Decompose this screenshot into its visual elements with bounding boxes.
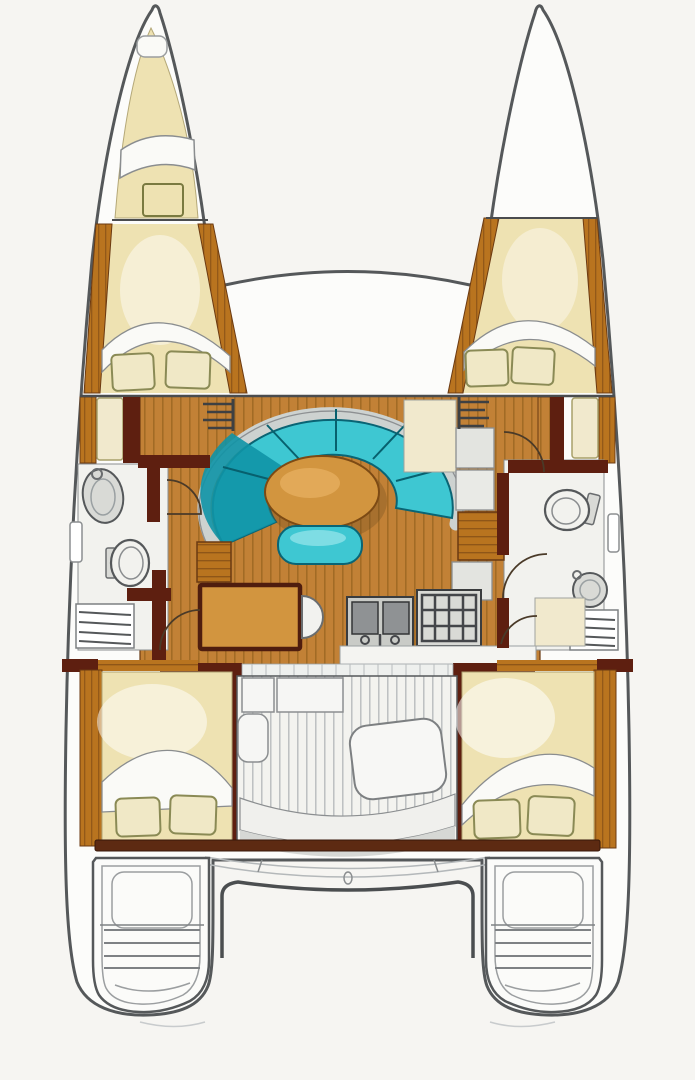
cabinet [456, 428, 494, 468]
bow-hatch-cushion [143, 184, 183, 216]
port-side-shelf [97, 398, 123, 460]
stove [417, 590, 481, 646]
wall [497, 473, 509, 555]
pillow [165, 351, 210, 389]
davit-fitting [344, 872, 352, 884]
cockpit-table [348, 717, 448, 802]
aft-beam [95, 840, 600, 851]
pillow [169, 795, 216, 835]
sink-bowl [383, 602, 409, 634]
companionway-stairs [76, 604, 134, 648]
pillow [465, 349, 508, 386]
davit-tick [258, 860, 262, 872]
port-forward-cabin [84, 224, 247, 393]
wood-bar [497, 660, 597, 671]
catamaran-floor-plan [0, 0, 695, 1080]
bow-pillow [137, 36, 167, 57]
chart-table [200, 585, 300, 649]
cockpit-seat-port [238, 714, 268, 762]
wall [152, 570, 166, 666]
aft-platform [205, 857, 490, 958]
stern-shadow [140, 1022, 205, 1027]
sliding-door [242, 664, 453, 676]
starboard-side-trim [599, 397, 615, 463]
davit-tick [434, 860, 438, 872]
hull-trim [594, 670, 616, 848]
starboard-side-shelf [572, 398, 598, 458]
port-bow-berth [112, 28, 208, 220]
hull-window [608, 514, 619, 552]
hull-steps-port [197, 542, 231, 582]
bed-sheen [455, 678, 555, 758]
sink-bowl [352, 602, 378, 634]
hull-trim [80, 670, 102, 846]
bed-sheen [97, 684, 207, 760]
pillow [511, 347, 555, 385]
cockpit-locker [242, 678, 274, 712]
counter-cream [404, 400, 456, 472]
stern-shadow [490, 1022, 555, 1027]
wall [497, 598, 509, 648]
hull-window [70, 522, 82, 562]
pillow [473, 799, 520, 839]
cockpit [237, 676, 457, 857]
pillow [527, 796, 575, 836]
counter-cream-aft [535, 598, 585, 646]
starboard-forward-cabin [448, 218, 612, 393]
bed-sheen [502, 228, 578, 332]
pillow [111, 353, 155, 391]
port-transom [93, 858, 209, 1027]
wall [550, 397, 564, 461]
port-aft-cabin [80, 670, 232, 846]
port-side-trim [80, 397, 96, 463]
cockpit-locker [277, 678, 343, 712]
wood-bar [98, 660, 198, 671]
davit-track [205, 864, 490, 877]
floor-plan-stage [0, 0, 695, 1080]
cabinet [456, 470, 494, 510]
table-highlight [280, 468, 340, 498]
wall [123, 397, 140, 463]
platform-arch [222, 882, 473, 958]
bench-highlight [290, 530, 346, 546]
starboard-aft-cabin [455, 670, 616, 848]
pillow [115, 797, 160, 837]
starboard-transom [486, 858, 602, 1027]
wall [147, 466, 160, 522]
wall [508, 460, 608, 473]
